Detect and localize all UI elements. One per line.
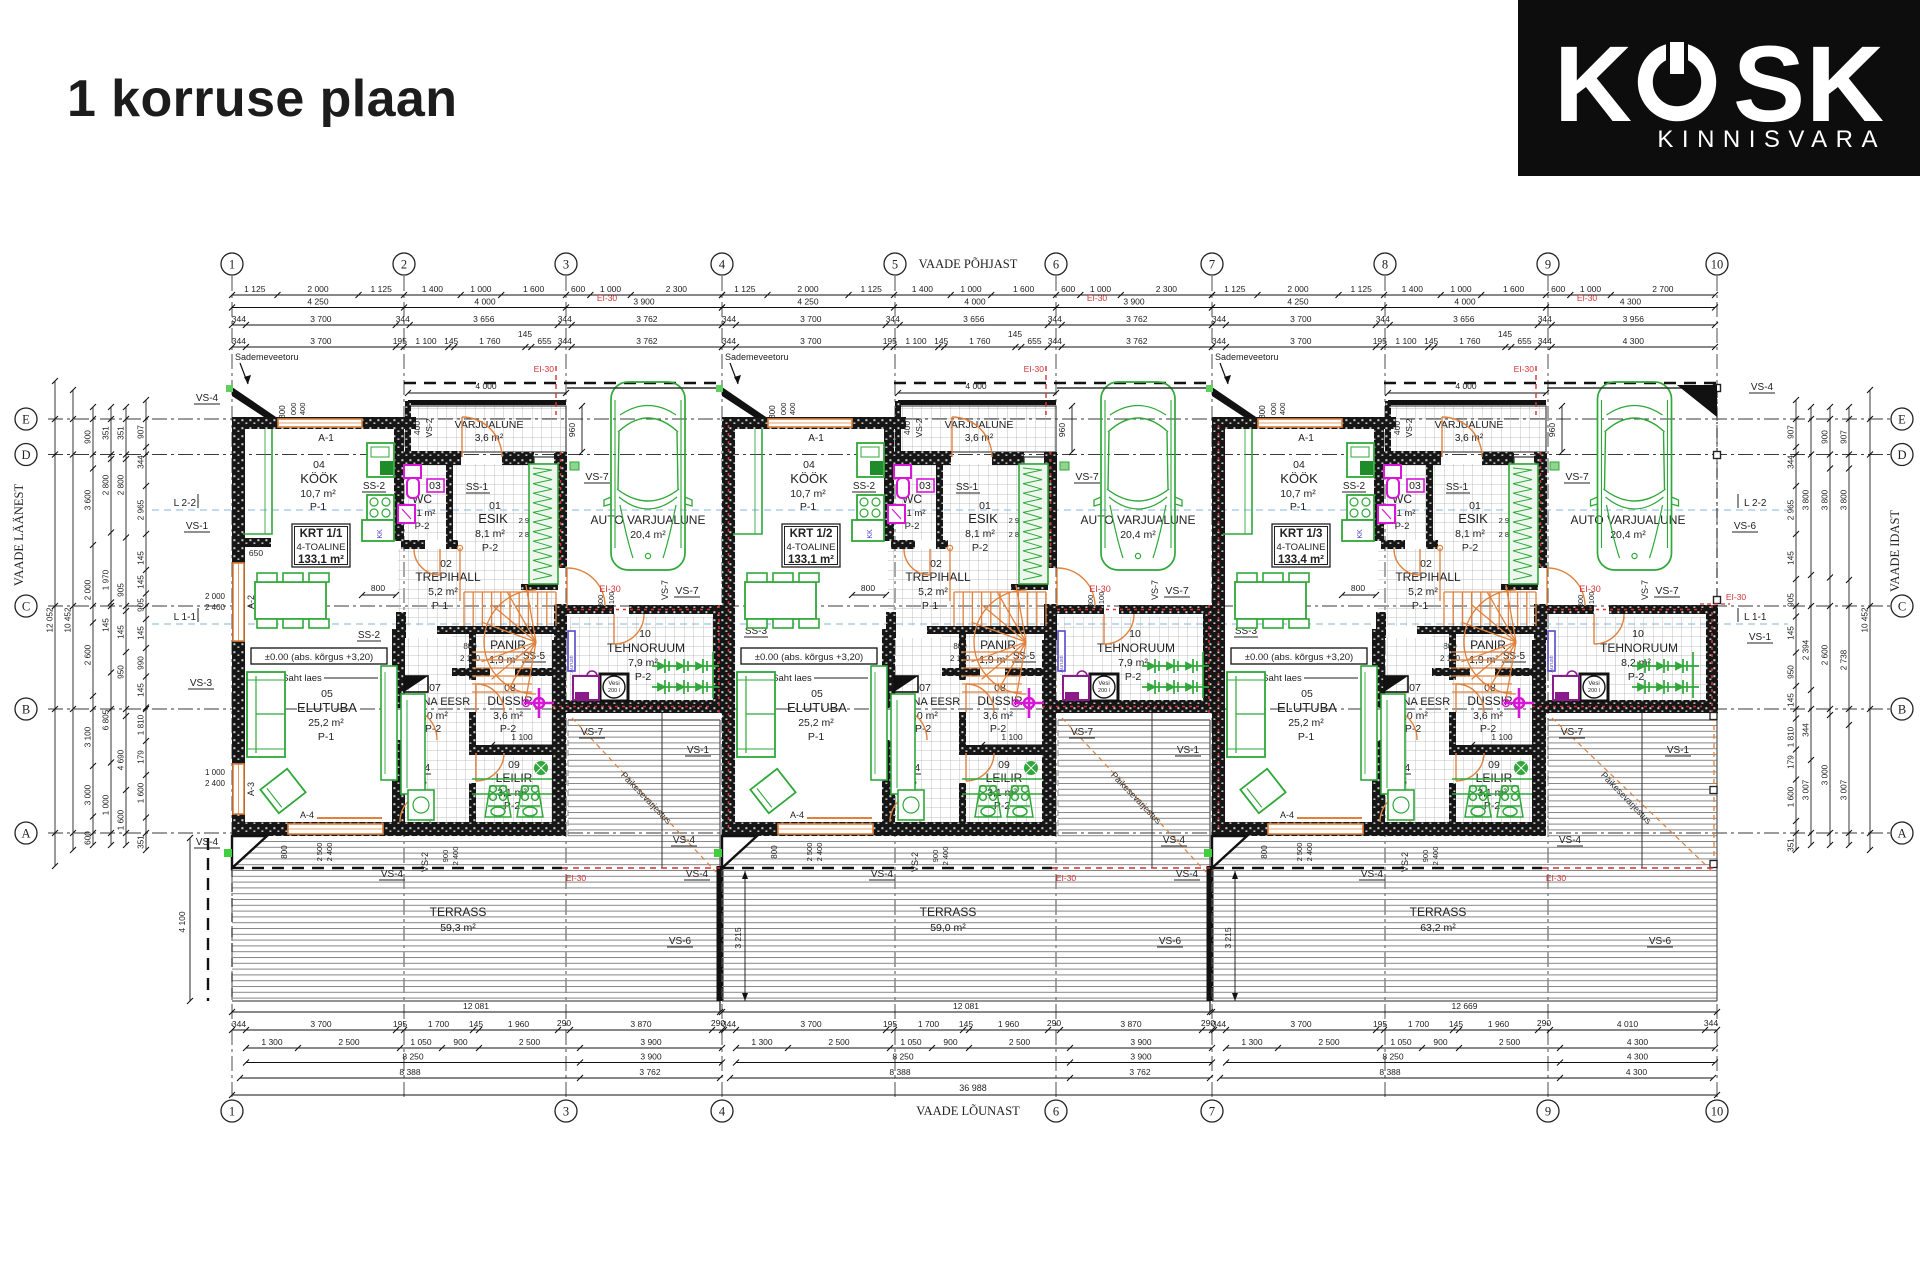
svg-text:800: 800 [1576, 595, 1585, 608]
svg-text:KK: KK [867, 529, 874, 539]
svg-text:290: 290 [557, 1018, 571, 1028]
svg-text:VS-7: VS-7 [1640, 580, 1650, 600]
svg-text:EI-30: EI-30 [534, 364, 555, 374]
svg-text:2: 2 [401, 258, 407, 272]
svg-text:3 900: 3 900 [640, 1037, 662, 1047]
svg-text:900: 900 [943, 1037, 957, 1047]
svg-text:960: 960 [567, 423, 577, 437]
svg-text:1 600: 1 600 [1013, 284, 1035, 294]
svg-text:A-4: A-4 [790, 810, 804, 820]
svg-text:4 300: 4 300 [1627, 1037, 1649, 1047]
svg-text:133,1 m²: 133,1 m² [788, 554, 834, 566]
svg-text:3 600: 3 600 [84, 489, 93, 510]
svg-text:3 007: 3 007 [1840, 779, 1849, 800]
svg-text:1 600: 1 600 [117, 809, 126, 830]
svg-text:Vesi: Vesi [1098, 681, 1109, 687]
svg-text:145: 145 [137, 575, 146, 589]
svg-text:3 762: 3 762 [1126, 336, 1148, 346]
svg-text:5,2 m²: 5,2 m² [918, 586, 948, 598]
svg-text:TERRASS: TERRASS [430, 905, 487, 919]
svg-text:145: 145 [1787, 551, 1796, 565]
svg-text:±0.00 (abs. kõrgus +3,20): ±0.00 (abs. kõrgus +3,20) [265, 652, 373, 663]
svg-text:10: 10 [1632, 628, 1644, 640]
svg-text:8 250: 8 250 [1382, 1052, 1404, 1062]
svg-text:03: 03 [919, 480, 931, 492]
svg-text:900: 900 [1821, 430, 1830, 444]
svg-text:1 050: 1 050 [1390, 1037, 1412, 1047]
svg-text:344: 344 [1212, 336, 1226, 346]
svg-text:2 738: 2 738 [1840, 649, 1849, 670]
svg-text:E: E [22, 413, 30, 427]
svg-text:10: 10 [1129, 628, 1141, 640]
svg-text:3 000: 3 000 [84, 784, 93, 805]
svg-text:3 700: 3 700 [800, 314, 822, 324]
svg-text:10 452: 10 452 [64, 607, 73, 632]
svg-text:A-3: A-3 [246, 782, 256, 796]
svg-text:B: B [1898, 703, 1906, 717]
svg-text:3 800: 3 800 [1821, 489, 1830, 510]
svg-text:TREPIHALL: TREPIHALL [415, 570, 481, 584]
svg-text:133,1 m²: 133,1 m² [298, 554, 344, 566]
svg-text:LEILIR: LEILIR [1476, 771, 1513, 785]
svg-text:VS-2: VS-2 [1404, 418, 1414, 437]
svg-text:ELUTUBA: ELUTUBA [1277, 700, 1337, 715]
svg-text:L 2-2: L 2-2 [1744, 498, 1767, 509]
svg-text:1: 1 [229, 258, 235, 272]
svg-text:344: 344 [1538, 314, 1552, 324]
svg-text:1 000: 1 000 [960, 284, 982, 294]
svg-text:3,6 m²: 3,6 m² [1473, 710, 1503, 722]
svg-text:P-2: P-2 [1125, 671, 1142, 683]
svg-text:4 000: 4 000 [474, 297, 496, 307]
svg-text:VS-4: VS-4 [673, 835, 696, 846]
svg-text:800: 800 [280, 845, 289, 859]
svg-text:8,1 m²: 8,1 m² [965, 528, 995, 540]
svg-text:990: 990 [137, 656, 146, 670]
svg-text:SS-1: SS-1 [466, 482, 489, 493]
svg-text:05: 05 [321, 688, 333, 700]
svg-text:1 600: 1 600 [1787, 786, 1796, 807]
svg-text:800: 800 [768, 405, 777, 419]
svg-text:2 800: 2 800 [102, 474, 111, 495]
svg-text:145: 145 [137, 551, 146, 565]
svg-text:09: 09 [998, 759, 1010, 771]
svg-text:4 250: 4 250 [797, 297, 819, 307]
svg-text:VS-4: VS-4 [1751, 382, 1774, 393]
svg-text:KRT 1/2: KRT 1/2 [790, 528, 833, 540]
svg-text:VS-2: VS-2 [910, 852, 920, 872]
svg-text:655: 655 [1027, 336, 1041, 346]
svg-text:3 800: 3 800 [1840, 489, 1849, 510]
svg-text:02: 02 [1420, 558, 1432, 570]
svg-text:EI-30: EI-30 [597, 293, 618, 303]
svg-text:4 000: 4 000 [965, 381, 987, 391]
svg-text:1 100: 1 100 [1395, 336, 1417, 346]
svg-text:5,2 m²: 5,2 m² [1408, 586, 1438, 598]
svg-text:2 600: 2 600 [84, 644, 93, 665]
svg-text:800: 800 [1260, 845, 1269, 859]
svg-text:195: 195 [883, 1019, 897, 1029]
svg-text:2 500: 2 500 [1499, 1037, 1521, 1047]
svg-text:2 400: 2 400 [451, 847, 460, 866]
svg-text:7,9 m²: 7,9 m² [1118, 657, 1148, 669]
svg-text:2 400: 2 400 [205, 603, 226, 612]
svg-text:Saht laes: Saht laes [772, 673, 812, 684]
svg-text:145: 145 [469, 1019, 483, 1029]
svg-text:Aurusti: Aurusti [1059, 655, 1065, 672]
svg-text:2 000: 2 000 [307, 284, 329, 294]
svg-text:A-1: A-1 [1298, 433, 1314, 444]
svg-text:344: 344 [232, 1019, 246, 1029]
svg-text:8 388: 8 388 [889, 1067, 911, 1077]
svg-text:900: 900 [441, 850, 450, 863]
svg-text:195: 195 [1373, 336, 1387, 346]
svg-text:KK: KK [1357, 529, 1364, 539]
svg-text:145: 145 [117, 625, 126, 639]
svg-text:SS-2: SS-2 [363, 481, 386, 492]
svg-text:4 000: 4 000 [1454, 297, 1476, 307]
svg-text:344: 344 [886, 314, 900, 324]
svg-text:179: 179 [137, 750, 146, 764]
svg-text:1 960: 1 960 [998, 1019, 1020, 1029]
svg-text:960: 960 [1547, 423, 1557, 437]
svg-text:1 000: 1 000 [205, 768, 226, 777]
svg-text:PANIR: PANIR [1470, 638, 1506, 652]
svg-text:2 965: 2 965 [1787, 499, 1796, 520]
svg-text:7: 7 [1209, 258, 1215, 272]
svg-text:Sademeveetoru: Sademeveetoru [725, 352, 789, 362]
svg-text:1 125: 1 125 [244, 284, 266, 294]
svg-text:KRT 1/1: KRT 1/1 [300, 528, 343, 540]
svg-text:VS-2: VS-2 [420, 852, 430, 872]
svg-text:10: 10 [1711, 258, 1724, 272]
svg-text:VS-7: VS-7 [581, 727, 604, 738]
svg-text:145: 145 [1498, 329, 1512, 339]
svg-text:800: 800 [1351, 583, 1365, 593]
svg-text:SS-2: SS-2 [358, 630, 381, 641]
svg-text:2 700: 2 700 [1652, 284, 1674, 294]
svg-text:3 762: 3 762 [1129, 1067, 1151, 1077]
svg-text:2 100: 2 100 [607, 592, 616, 611]
svg-text:200 l: 200 l [1588, 688, 1600, 694]
svg-text:L 1-1: L 1-1 [174, 612, 197, 623]
svg-text:3 762: 3 762 [636, 314, 658, 324]
svg-text:2 400: 2 400 [325, 843, 334, 862]
svg-text:800: 800 [278, 405, 287, 419]
svg-text:2 500: 2 500 [1295, 843, 1304, 862]
svg-text:1 000: 1 000 [470, 284, 492, 294]
svg-text:1 760: 1 760 [1459, 336, 1481, 346]
svg-text:3 656: 3 656 [963, 314, 985, 324]
svg-text:800: 800 [1086, 595, 1095, 608]
svg-text:3 700: 3 700 [1290, 336, 1312, 346]
svg-text:VS-2: VS-2 [914, 418, 924, 437]
svg-text:2 965: 2 965 [137, 499, 146, 520]
svg-text:133,4 m²: 133,4 m² [1278, 554, 1324, 566]
svg-text:ESIK: ESIK [968, 511, 998, 526]
svg-text:3,6 m²: 3,6 m² [493, 710, 523, 722]
svg-text:VS-1: VS-1 [687, 745, 710, 756]
svg-text:4 010: 4 010 [1617, 1019, 1639, 1029]
svg-text:1 000: 1 000 [1450, 284, 1472, 294]
svg-text:600: 600 [1551, 284, 1565, 294]
svg-text:200 l: 200 l [1098, 688, 1110, 694]
svg-text:8,2 m²: 8,2 m² [1621, 657, 1651, 669]
svg-text:10: 10 [639, 628, 651, 640]
svg-text:3,1 m²: 3,1 m² [987, 787, 1017, 799]
svg-text:EI-30: EI-30 [1056, 873, 1077, 883]
svg-text:B: B [22, 703, 30, 717]
svg-text:3 656: 3 656 [473, 314, 495, 324]
svg-text:20,4 m²: 20,4 m² [1120, 529, 1156, 541]
svg-text:905: 905 [1787, 593, 1796, 607]
svg-text:SS-2: SS-2 [1343, 481, 1366, 492]
svg-text:SS-1: SS-1 [1446, 482, 1469, 493]
svg-text:3 700: 3 700 [1290, 314, 1312, 324]
svg-text:P-2: P-2 [905, 521, 920, 532]
svg-text:1 960: 1 960 [508, 1019, 530, 1029]
svg-text:SS-1: SS-1 [956, 482, 979, 493]
svg-text:04: 04 [803, 459, 815, 471]
svg-text:PANIR: PANIR [490, 638, 526, 652]
svg-text:145: 145 [1008, 329, 1022, 339]
svg-text:1 760: 1 760 [969, 336, 991, 346]
svg-text:20,4 m²: 20,4 m² [630, 529, 666, 541]
svg-text:02: 02 [440, 558, 452, 570]
svg-text:4 300: 4 300 [1623, 336, 1645, 346]
svg-text:1 125: 1 125 [734, 284, 756, 294]
svg-text:02: 02 [930, 558, 942, 570]
svg-text:4: 4 [719, 258, 726, 272]
svg-text:TERRASS: TERRASS [920, 905, 977, 919]
svg-text:07: 07 [429, 682, 441, 694]
svg-text:8: 8 [1382, 258, 1388, 272]
svg-text:TEHNORUUM: TEHNORUUM [1600, 641, 1678, 655]
svg-text:800: 800 [596, 595, 605, 608]
svg-text:650: 650 [249, 548, 263, 558]
svg-text:900: 900 [1433, 1037, 1447, 1047]
svg-text:7: 7 [1209, 1105, 1215, 1119]
svg-text:2 500: 2 500 [805, 843, 814, 862]
svg-text:3: 3 [563, 1105, 569, 1119]
svg-text:3 700: 3 700 [1290, 1019, 1312, 1029]
svg-text:344: 344 [722, 1019, 736, 1029]
svg-text:VS-2: VS-2 [424, 418, 434, 437]
svg-text:1 970: 1 970 [102, 569, 111, 590]
svg-text:950: 950 [1787, 665, 1796, 679]
svg-text:25,2 m²: 25,2 m² [308, 717, 344, 729]
svg-text:SS-2: SS-2 [853, 481, 876, 492]
svg-text:905: 905 [117, 583, 126, 597]
svg-text:1 100: 1 100 [905, 336, 927, 346]
svg-text:344: 344 [396, 314, 410, 324]
svg-text:351: 351 [117, 426, 126, 440]
svg-text:3 100: 3 100 [84, 726, 93, 747]
svg-text:09: 09 [1488, 759, 1500, 771]
svg-text:344: 344 [1376, 314, 1390, 324]
svg-text:VS-6: VS-6 [1734, 521, 1757, 532]
svg-text:1 600: 1 600 [1503, 284, 1525, 294]
svg-text:800: 800 [371, 583, 385, 593]
svg-text:900: 900 [1421, 850, 1430, 863]
svg-text:4 690: 4 690 [117, 749, 126, 770]
svg-text:VS-4: VS-4 [871, 869, 894, 880]
svg-text:20,4 m²: 20,4 m² [1610, 529, 1646, 541]
svg-text:VS-1: VS-1 [1667, 745, 1690, 756]
svg-text:P-2: P-2 [1628, 671, 1645, 683]
svg-text:P-1: P-1 [310, 501, 327, 513]
svg-text:VS-3: VS-3 [190, 678, 213, 689]
svg-text:4 000: 4 000 [475, 381, 497, 391]
svg-text:EI-30: EI-30 [1514, 364, 1535, 374]
svg-text:145: 145 [102, 618, 111, 632]
svg-text:3,1 m²: 3,1 m² [497, 787, 527, 799]
svg-text:03: 03 [429, 480, 441, 492]
svg-text:07: 07 [1409, 682, 1421, 694]
svg-text:4-TOALINE: 4-TOALINE [787, 542, 836, 553]
svg-text:3 762: 3 762 [1126, 314, 1148, 324]
svg-text:2 000: 2 000 [1287, 284, 1309, 294]
svg-text:TERRASS: TERRASS [1410, 905, 1467, 919]
svg-text:4 000: 4 000 [964, 297, 986, 307]
svg-text:2 400: 2 400 [815, 843, 824, 862]
svg-text:3 700: 3 700 [310, 336, 332, 346]
svg-text:04: 04 [1293, 459, 1305, 471]
svg-text:2 000: 2 000 [205, 592, 226, 601]
svg-text:1 760: 1 760 [479, 336, 501, 346]
svg-text:200 l: 200 l [608, 688, 620, 694]
svg-text:9: 9 [1545, 258, 1551, 272]
svg-text:VS-4: VS-4 [196, 837, 219, 848]
svg-text:145: 145 [1424, 336, 1438, 346]
svg-text:1 700: 1 700 [918, 1019, 940, 1029]
svg-text:09: 09 [508, 759, 520, 771]
svg-text:ELUTUBA: ELUTUBA [297, 700, 357, 715]
svg-text:A-4: A-4 [1280, 810, 1294, 820]
svg-text:P-1: P-1 [318, 731, 335, 743]
svg-text:1 100: 1 100 [511, 732, 533, 742]
svg-text:P-2: P-2 [635, 671, 652, 683]
svg-text:4-TOALINE: 4-TOALINE [297, 542, 346, 553]
svg-text:VAADE LÄÄNEST: VAADE LÄÄNEST [12, 484, 26, 587]
svg-text:900: 900 [453, 1037, 467, 1047]
svg-text:10: 10 [1711, 1105, 1724, 1119]
svg-text:2 500: 2 500 [828, 1037, 850, 1047]
svg-text:VARJUALUNE: VARJUALUNE [945, 419, 1014, 431]
svg-text:1 600: 1 600 [523, 284, 545, 294]
svg-text:D: D [1897, 448, 1906, 462]
svg-text:VS-4: VS-4 [196, 393, 219, 404]
svg-text:P-1: P-1 [808, 731, 825, 743]
svg-text:04: 04 [313, 459, 325, 471]
svg-text:KÖÖK: KÖÖK [790, 471, 828, 486]
svg-text:344: 344 [722, 314, 736, 324]
svg-text:2 400: 2 400 [1305, 843, 1314, 862]
svg-text:800: 800 [861, 583, 875, 593]
svg-text:VARJUALUNE: VARJUALUNE [1435, 419, 1504, 431]
svg-text:A: A [21, 827, 30, 841]
svg-text:VS-7: VS-7 [1150, 580, 1160, 600]
svg-text:±0.00 (abs. kõrgus +3,20): ±0.00 (abs. kõrgus +3,20) [1245, 652, 1353, 663]
svg-text:195: 195 [393, 1019, 407, 1029]
svg-text:EI-30: EI-30 [566, 873, 587, 883]
svg-text:3,6 m²: 3,6 m² [983, 710, 1013, 722]
svg-text:145: 145 [444, 336, 458, 346]
svg-text:EI-30: EI-30 [1577, 293, 1598, 303]
svg-text:600: 600 [1061, 284, 1075, 294]
svg-text:3 762: 3 762 [639, 1067, 661, 1077]
svg-text:L 2-2: L 2-2 [174, 498, 197, 509]
svg-text:5: 5 [892, 258, 898, 272]
svg-text:LEILIR: LEILIR [986, 771, 1023, 785]
svg-text:Sademeveetoru: Sademeveetoru [1215, 352, 1279, 362]
svg-text:290: 290 [1047, 1018, 1061, 1028]
svg-text:344: 344 [558, 314, 572, 324]
svg-text:3 700: 3 700 [310, 314, 332, 324]
svg-text:1 300: 1 300 [261, 1037, 283, 1047]
svg-text:±0.00 (abs. kõrgus +3,20): ±0.00 (abs. kõrgus +3,20) [755, 652, 863, 663]
svg-text:Vesi: Vesi [1588, 681, 1599, 687]
svg-text:1 960: 1 960 [1488, 1019, 1510, 1029]
svg-text:351: 351 [102, 426, 111, 440]
svg-text:12 081: 12 081 [463, 1001, 489, 1011]
svg-text:10,7 m²: 10,7 m² [300, 488, 336, 500]
svg-text:KK: KK [377, 529, 384, 539]
svg-text:4: 4 [719, 1105, 726, 1119]
svg-text:VS-4: VS-4 [1163, 835, 1186, 846]
svg-text:6: 6 [1053, 1105, 1059, 1119]
svg-text:145: 145 [934, 336, 948, 346]
svg-text:VS-6: VS-6 [669, 936, 692, 947]
svg-text:960: 960 [1057, 423, 1067, 437]
svg-text:D: D [21, 448, 30, 462]
svg-text:EI-30: EI-30 [1087, 293, 1108, 303]
svg-text:1 korruse plaan: 1 korruse plaan [67, 70, 457, 128]
svg-text:1 300: 1 300 [1241, 1037, 1263, 1047]
svg-text:351: 351 [137, 835, 146, 849]
svg-text:VAADE IDAST: VAADE IDAST [1888, 510, 1902, 592]
svg-text:344: 344 [1538, 336, 1552, 346]
svg-text:C: C [22, 600, 30, 614]
svg-text:VS-7: VS-7 [1655, 585, 1679, 597]
svg-text:C: C [1898, 600, 1906, 614]
svg-text:2 300: 2 300 [1156, 284, 1178, 294]
svg-text:1 000: 1 000 [102, 794, 111, 815]
svg-text:800: 800 [1258, 405, 1267, 419]
svg-text:1 810: 1 810 [137, 714, 146, 735]
svg-text:36 988: 36 988 [959, 1083, 987, 1093]
svg-text:3 215: 3 215 [1223, 927, 1233, 949]
svg-text:VS-1: VS-1 [1177, 745, 1200, 756]
svg-text:2 500: 2 500 [1318, 1037, 1340, 1047]
svg-text:3 870: 3 870 [630, 1019, 652, 1029]
svg-text:25,2 m²: 25,2 m² [798, 717, 834, 729]
svg-text:3 800: 3 800 [1802, 489, 1811, 510]
svg-text:1 810: 1 810 [1787, 726, 1796, 747]
svg-text:A-4: A-4 [300, 810, 314, 820]
svg-text:351: 351 [1787, 838, 1796, 852]
svg-text:12 052: 12 052 [46, 607, 55, 632]
svg-text:290: 290 [1537, 1018, 1551, 1028]
svg-text:Vesi: Vesi [608, 681, 619, 687]
svg-text:P-2: P-2 [415, 521, 430, 532]
svg-text:344: 344 [1212, 314, 1226, 324]
svg-text:KÖÖK: KÖÖK [300, 471, 338, 486]
svg-text:3 900: 3 900 [1130, 1037, 1152, 1047]
svg-text:2 500: 2 500 [1009, 1037, 1031, 1047]
svg-text:4 300: 4 300 [1620, 297, 1642, 307]
svg-text:TREPIHALL: TREPIHALL [1395, 570, 1461, 584]
